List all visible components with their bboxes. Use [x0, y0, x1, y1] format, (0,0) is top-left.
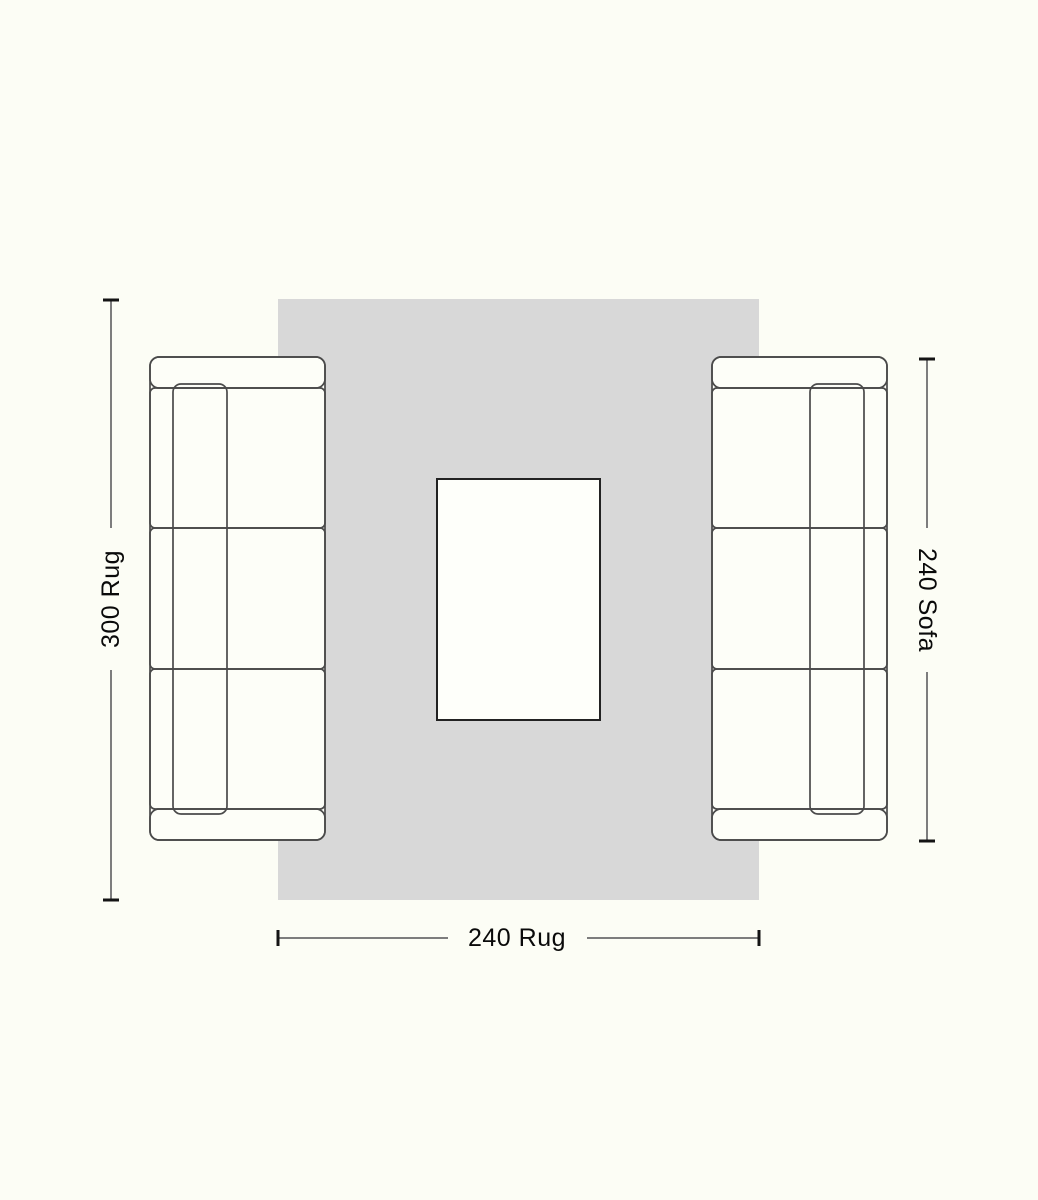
dimension-rug-width-label: 240 Rug	[468, 924, 566, 952]
sofa-right	[712, 357, 887, 840]
dimension-rug-length: 300 Rug	[97, 300, 125, 900]
sofa-left-outline	[150, 357, 325, 840]
layout-diagram-canvas: 300 Rug 240 Sofa 240 Rug	[0, 0, 1038, 1200]
dimension-rug-length-label: 300 Rug	[97, 550, 125, 648]
sofa-left	[150, 357, 325, 840]
rug-sofa-layout-diagram: 300 Rug 240 Sofa 240 Rug	[0, 0, 1038, 1200]
coffee-table	[437, 479, 600, 720]
dimension-sofa-length: 240 Sofa	[913, 359, 941, 841]
dimension-rug-width: 240 Rug	[278, 924, 759, 952]
dimension-sofa-length-label: 240 Sofa	[913, 548, 941, 652]
sofa-right-outline	[712, 357, 887, 840]
